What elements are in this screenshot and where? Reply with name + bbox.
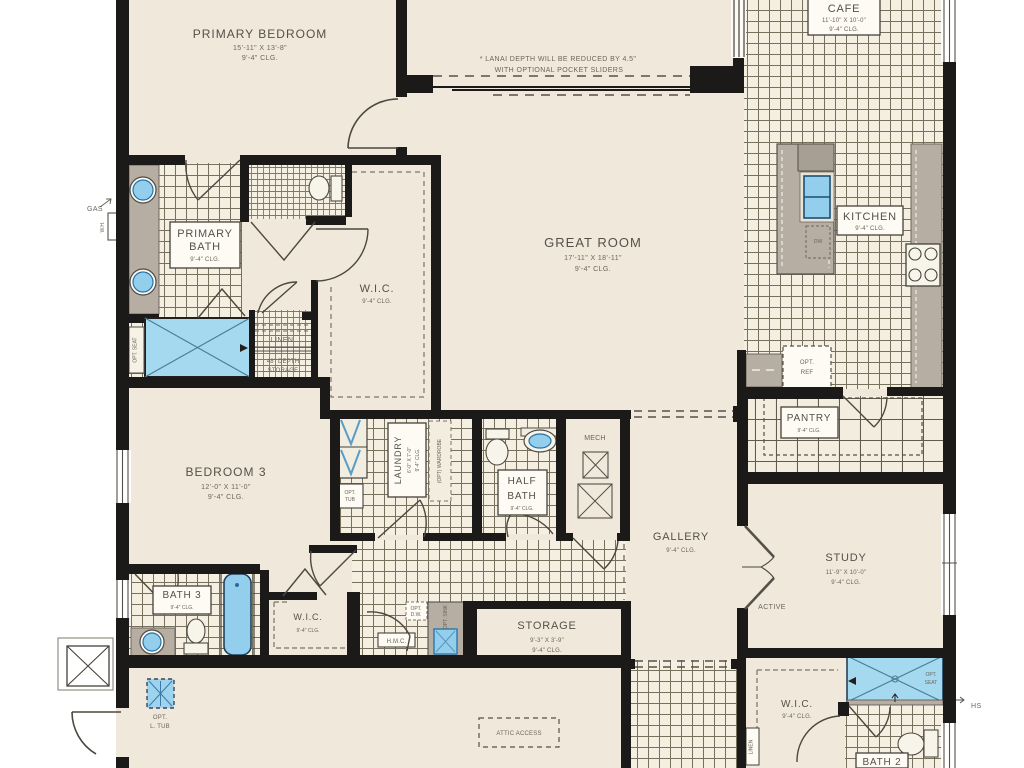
svg-text:STORAGE: STORAGE [268, 368, 299, 374]
svg-text:9'-4" CLG.: 9'-4" CLG. [782, 714, 812, 720]
svg-text:WITH OPTIONAL POCKET SLIDERS: WITH OPTIONAL POCKET SLIDERS [495, 67, 624, 74]
svg-text:9'-4" CLG.: 9'-4" CLG. [855, 226, 885, 232]
svg-text:BATH: BATH [189, 241, 221, 253]
svg-text:DW: DW [814, 239, 823, 245]
svg-text:(OPT) WARDROBE: (OPT) WARDROBE [437, 438, 443, 483]
svg-text:9'-4" CLG.: 9'-4" CLG. [797, 428, 820, 434]
svg-text:9'-4" CLG.: 9'-4" CLG. [829, 27, 859, 33]
svg-text:ACTIVE: ACTIVE [758, 604, 786, 611]
svg-text:17'-11" X 18'-11": 17'-11" X 18'-11" [564, 255, 622, 262]
svg-text:GREAT ROOM: GREAT ROOM [544, 235, 642, 250]
svg-text:9'-4" CLG.: 9'-4" CLG. [190, 257, 220, 263]
svg-text:ATTIC ACCESS: ATTIC ACCESS [496, 731, 541, 737]
svg-text:D.W.: D.W. [411, 612, 422, 618]
svg-text:LAUNDRY: LAUNDRY [393, 436, 403, 484]
svg-text:9'-4" CLG.: 9'-4" CLG. [170, 605, 193, 611]
svg-text:* LANAI DEPTH WILL BE REDUCED: * LANAI DEPTH WILL BE REDUCED BY 4.5" [480, 56, 637, 63]
svg-text:L. TUB: L. TUB [150, 724, 170, 730]
svg-text:9'-4" CLG.: 9'-4" CLG. [362, 299, 392, 305]
svg-text:LINEN: LINEN [749, 739, 755, 754]
svg-text:9'-3" X 3'-9": 9'-3" X 3'-9" [530, 638, 564, 644]
svg-text:9'-4" CLG.: 9'-4" CLG. [575, 266, 611, 273]
svg-text:MECH: MECH [584, 435, 605, 442]
svg-text:BATH 2: BATH 2 [862, 757, 901, 768]
svg-text:OPT. SINK: OPT. SINK [443, 604, 449, 629]
svg-text:KITCHEN: KITCHEN [843, 211, 897, 223]
svg-text:BEDROOM 3: BEDROOM 3 [185, 465, 266, 479]
svg-text:9'-4" CLG.: 9'-4" CLG. [296, 628, 319, 634]
svg-text:6'-0" X 7'-0": 6'-0" X 7'-0" [407, 447, 413, 473]
svg-text:11'-10" X 10'-0": 11'-10" X 10'-0" [822, 18, 866, 24]
svg-text:REF: REF [801, 370, 814, 376]
svg-text:BATH: BATH [507, 491, 536, 502]
svg-text:TUB: TUB [345, 497, 356, 503]
svg-text:11'-9" X 10'-0": 11'-9" X 10'-0" [826, 570, 866, 576]
svg-text:9'-4" CLG.: 9'-4" CLG. [510, 506, 533, 512]
svg-text:OPT. SEAT: OPT. SEAT [133, 337, 139, 362]
svg-text:PRIMARY BEDROOM: PRIMARY BEDROOM [193, 27, 328, 41]
svg-text:BATH 3: BATH 3 [162, 590, 201, 601]
svg-text:9'-4" CLG.: 9'-4" CLG. [831, 580, 861, 586]
svg-text:OPT.: OPT. [800, 360, 814, 366]
svg-text:HALF: HALF [508, 476, 537, 487]
svg-text:PRIMARY: PRIMARY [177, 228, 233, 240]
svg-text:12'-0" X 11'-0": 12'-0" X 11'-0" [201, 484, 251, 491]
svg-text:SEAT: SEAT [925, 680, 938, 686]
svg-text:GALLERY: GALLERY [653, 531, 709, 543]
svg-text:PANTRY: PANTRY [787, 413, 831, 424]
svg-text:GAS: GAS [87, 206, 103, 213]
svg-text:9'-4" CLG.: 9'-4" CLG. [415, 448, 421, 471]
svg-text:9'-4" CLG.: 9'-4" CLG. [208, 494, 244, 501]
svg-text:OPT.: OPT. [344, 490, 355, 496]
svg-text:W.I.C.: W.I.C. [293, 612, 322, 622]
svg-text:CAFE: CAFE [828, 3, 861, 15]
svg-text:W.I.C.: W.I.C. [360, 283, 395, 295]
svg-text:48" DEPTH: 48" DEPTH [267, 359, 300, 365]
svg-text:9'-4" CLG.: 9'-4" CLG. [242, 55, 278, 62]
svg-text:W.H.: W.H. [100, 222, 106, 233]
svg-text:STORAGE: STORAGE [517, 620, 576, 632]
svg-text:9'-4" CLG.: 9'-4" CLG. [666, 548, 696, 554]
svg-text:9'-4" CLG.: 9'-4" CLG. [532, 648, 562, 654]
svg-text:15'-11" X 13'-8": 15'-11" X 13'-8" [233, 45, 287, 52]
svg-text:OPT.: OPT. [153, 715, 167, 721]
svg-text:H.M.C.: H.M.C. [387, 639, 407, 645]
svg-text:W.I.C.: W.I.C. [781, 699, 813, 710]
svg-text:STUDY: STUDY [825, 552, 866, 564]
svg-text:HS: HS [971, 703, 982, 710]
svg-text:LINEN: LINEN [271, 337, 294, 344]
svg-text:OPT.: OPT. [925, 672, 936, 678]
